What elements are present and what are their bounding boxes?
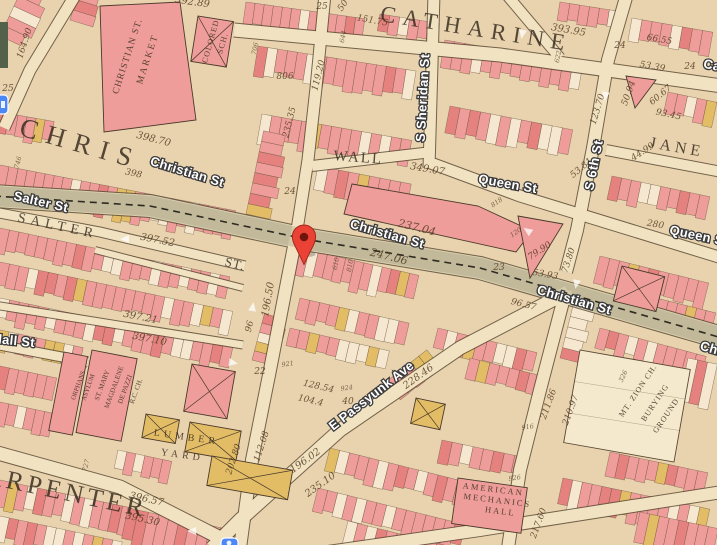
map-canvas[interactable]: CATHARINECHRISWALLJANESALTERST.ARPENTERC… — [0, 0, 717, 545]
survey-number: 22 — [253, 367, 266, 377]
survey-number: 806 — [276, 72, 293, 82]
x-marked-frame-building — [411, 398, 446, 430]
survey-number: 24 — [683, 62, 696, 72]
survey-number: 25 — [315, 2, 328, 12]
survey-number: 23 — [492, 263, 505, 273]
survey-number: 24 — [613, 41, 626, 51]
map-pin-dot — [300, 233, 309, 242]
map-edge-green-sliver — [0, 22, 8, 68]
lot-number: 924 — [340, 383, 353, 393]
survey-number: 24 — [283, 187, 296, 197]
blue-map-badge-left-icon[interactable] — [0, 95, 8, 114]
historical-map-view[interactable]: CATHARINECHRISWALLJANESALTERST.ARPENTERC… — [0, 0, 717, 545]
survey-number: 25 — [1, 84, 14, 94]
x-marked-brick-building — [184, 364, 236, 419]
lot-number: 926 — [508, 473, 521, 483]
lot-number: 921 — [281, 359, 294, 369]
blue-map-badge-bottom-icon[interactable] — [221, 538, 238, 545]
lot-number: 916 — [521, 422, 534, 432]
